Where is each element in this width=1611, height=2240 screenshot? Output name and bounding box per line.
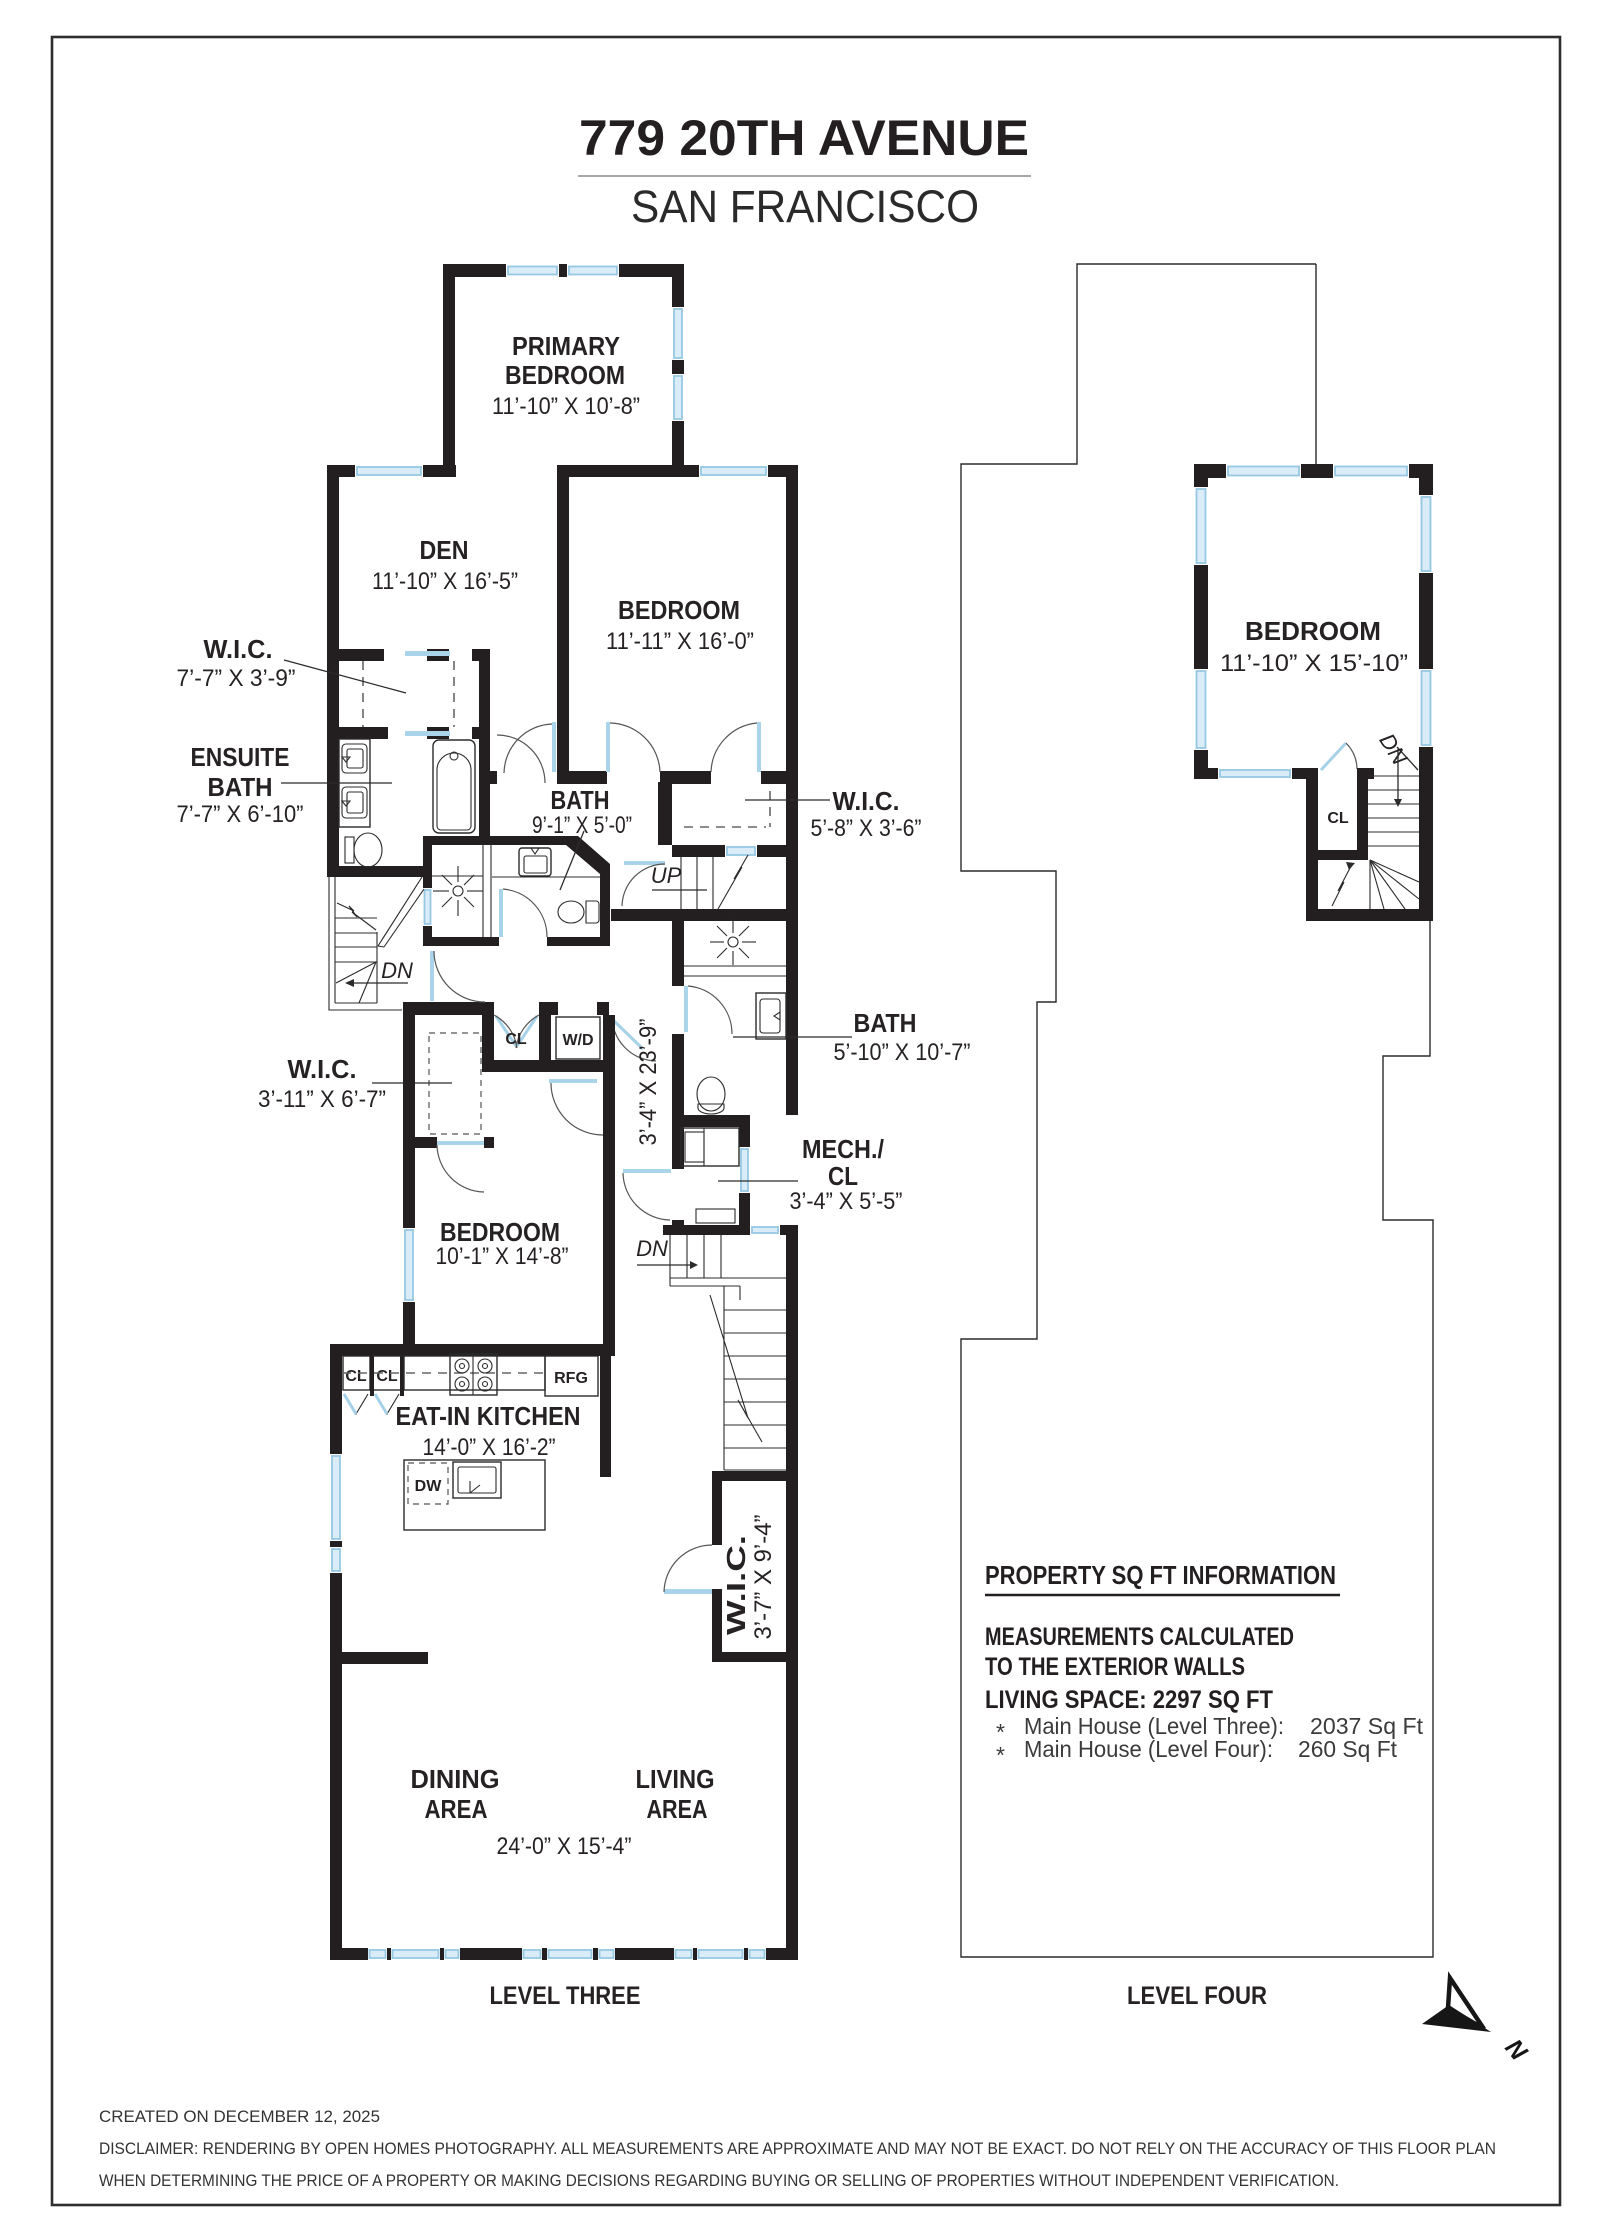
svg-text:SAN FRANCISCO: SAN FRANCISCO: [631, 181, 979, 232]
svg-text:PRIMARY: PRIMARY: [512, 331, 620, 361]
svg-text:W.I.C.: W.I.C.: [204, 634, 273, 664]
svg-text:LEVEL THREE: LEVEL THREE: [490, 1982, 641, 2010]
svg-text:CL: CL: [1327, 810, 1349, 827]
svg-text:BEDROOM: BEDROOM: [618, 595, 740, 625]
svg-text:TO THE EXTERIOR WALLS: TO THE EXTERIOR WALLS: [985, 1653, 1245, 1681]
svg-text:W/D: W/D: [562, 1032, 593, 1049]
svg-text:3’-4” X 23’-9”: 3’-4” X 23’-9”: [635, 1018, 662, 1145]
svg-text:11’-10” X 15’-10”: 11’-10” X 15’-10”: [1220, 650, 1408, 677]
svg-text:MEASUREMENTS CALCULATED: MEASUREMENTS CALCULATED: [985, 1623, 1294, 1651]
svg-text:*: *: [996, 1742, 1005, 1768]
svg-text:BATH: BATH: [551, 785, 610, 815]
svg-text:DEN: DEN: [420, 535, 469, 565]
svg-text:CL: CL: [828, 1161, 858, 1191]
svg-text:DISCLAIMER: RENDERING BY OPEN: DISCLAIMER: RENDERING BY OPEN HOMES PHOT…: [99, 2139, 1496, 2158]
svg-text:LIVING: LIVING: [636, 1764, 715, 1794]
svg-text:11’-11” X 16’-0”: 11’-11” X 16’-0”: [606, 628, 754, 655]
svg-text:CL: CL: [505, 1031, 527, 1048]
svg-text:CL: CL: [345, 1368, 367, 1385]
svg-text:3’-7” X 9’-4”: 3’-7” X 9’-4”: [750, 1515, 777, 1640]
svg-text:260 Sq Ft: 260 Sq Ft: [1298, 1736, 1398, 1762]
svg-text:DW: DW: [415, 1478, 443, 1495]
svg-text:RFG: RFG: [554, 1370, 588, 1387]
svg-text:W.I.C.: W.I.C.: [288, 1054, 357, 1084]
svg-text:BEDROOM: BEDROOM: [505, 360, 625, 390]
svg-text:BEDROOM: BEDROOM: [1245, 616, 1381, 646]
svg-text:W.I.C.: W.I.C.: [833, 786, 900, 816]
svg-text:CREATED ON DECEMBER 12, 2025: CREATED ON DECEMBER 12, 2025: [99, 2107, 380, 2126]
svg-text:DN: DN: [381, 958, 413, 983]
svg-text:WHEN DETERMINING THE PRICE OF: WHEN DETERMINING THE PRICE OF A PROPERTY…: [99, 2171, 1339, 2190]
svg-text:BATH: BATH: [854, 1008, 917, 1038]
svg-text:EAT-IN KITCHEN: EAT-IN KITCHEN: [396, 1401, 581, 1431]
svg-text:Main House (Level Four):: Main House (Level Four):: [1024, 1736, 1273, 1762]
svg-text:MECH./: MECH./: [802, 1134, 884, 1164]
svg-text:5’-10” X 10’-7”: 5’-10” X 10’-7”: [834, 1039, 971, 1066]
svg-text:PROPERTY SQ FT INFORMATION: PROPERTY SQ FT INFORMATION: [985, 1560, 1336, 1590]
svg-text:AREA: AREA: [647, 1794, 708, 1824]
svg-text:3’-11” X 6’-7”: 3’-11” X 6’-7”: [258, 1086, 386, 1113]
svg-text:W.I.C.: W.I.C.: [721, 1535, 751, 1635]
svg-text:7’-7” X 6’-10”: 7’-7” X 6’-10”: [177, 801, 304, 828]
svg-text:3’-4” X 5’-5”: 3’-4” X 5’-5”: [790, 1188, 903, 1215]
svg-text:14’-0” X 16’-2”: 14’-0” X 16’-2”: [423, 1434, 556, 1461]
svg-text:DINING: DINING: [411, 1764, 500, 1794]
svg-text:7’-7” X 3’-9”: 7’-7” X 3’-9”: [177, 665, 296, 692]
svg-text:10’-1” X 14’-8”: 10’-1” X 14’-8”: [436, 1243, 569, 1270]
svg-text:BATH: BATH: [208, 772, 273, 802]
svg-text:LEVEL FOUR: LEVEL FOUR: [1127, 1982, 1267, 2010]
svg-text:11’-10” X 10’-8”: 11’-10” X 10’-8”: [492, 393, 640, 420]
svg-text:LIVING SPACE: 2297 SQ FT: LIVING SPACE: 2297 SQ FT: [985, 1686, 1273, 1714]
svg-text:5’-8” X 3’-6”: 5’-8” X 3’-6”: [811, 815, 922, 842]
svg-text:ENSUITE: ENSUITE: [191, 742, 290, 772]
svg-text:CL: CL: [376, 1368, 398, 1385]
svg-text:11’-10” X 16’-5”: 11’-10” X 16’-5”: [372, 568, 518, 595]
svg-text:24’-0” X 15’-4”: 24’-0” X 15’-4”: [497, 1833, 632, 1860]
svg-text:AREA: AREA: [425, 1794, 488, 1824]
svg-text:DN: DN: [636, 1236, 668, 1261]
svg-text:779 20TH AVENUE: 779 20TH AVENUE: [579, 110, 1029, 166]
svg-text:UP: UP: [651, 863, 682, 888]
